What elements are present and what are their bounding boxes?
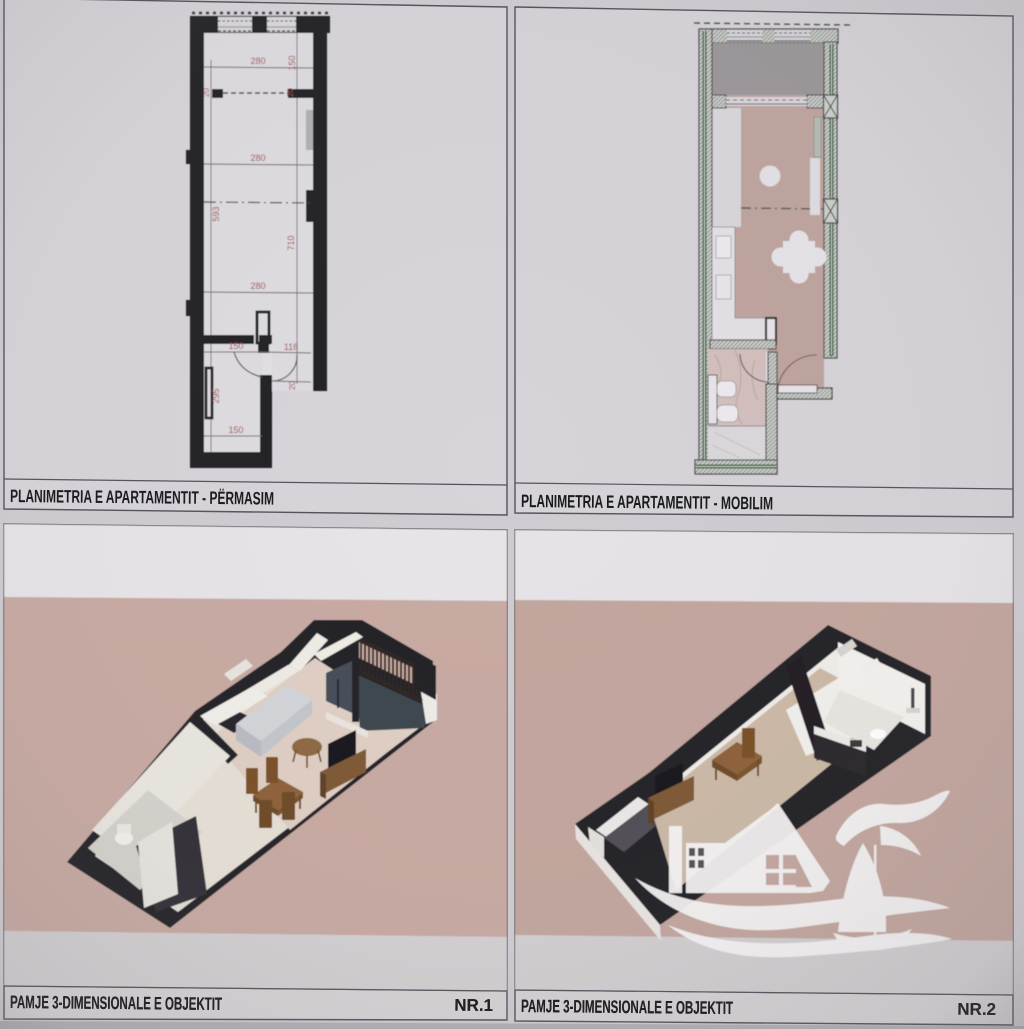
svg-text:PAMJE 3-DIMENSIONALE E OBJEKTI: PAMJE 3-DIMENSIONALE E OBJEKTIT bbox=[10, 992, 222, 1014]
svg-text:150: 150 bbox=[287, 55, 297, 70]
svg-text:593: 593 bbox=[211, 206, 221, 221]
svg-text:PLANIMETRIA E APARTAMENTIT - P: PLANIMETRIA E APARTAMENTIT - PËRMASIM bbox=[10, 486, 274, 509]
svg-text:710: 710 bbox=[286, 235, 296, 250]
svg-text:280: 280 bbox=[250, 281, 265, 291]
svg-text:PAMJE 3-DIMENSIONALE E OBJEKTI: PAMJE 3-DIMENSIONALE E OBJEKTIT bbox=[521, 996, 733, 1018]
svg-text:20: 20 bbox=[288, 381, 297, 390]
svg-text:20: 20 bbox=[286, 88, 295, 97]
svg-text:PLANIMETRIA E APARTAMENTIT - M: PLANIMETRIA E APARTAMENTIT - MOBILIM bbox=[521, 491, 773, 513]
svg-text:NR.1: NR.1 bbox=[454, 996, 493, 1015]
svg-text:280: 280 bbox=[250, 56, 265, 66]
svg-text:280: 280 bbox=[250, 153, 265, 163]
svg-text:150: 150 bbox=[228, 341, 243, 351]
svg-text:295: 295 bbox=[211, 388, 221, 403]
svg-text:118: 118 bbox=[284, 342, 298, 352]
svg-text:NR.2: NR.2 bbox=[957, 1000, 996, 1019]
svg-text:150: 150 bbox=[228, 425, 243, 435]
